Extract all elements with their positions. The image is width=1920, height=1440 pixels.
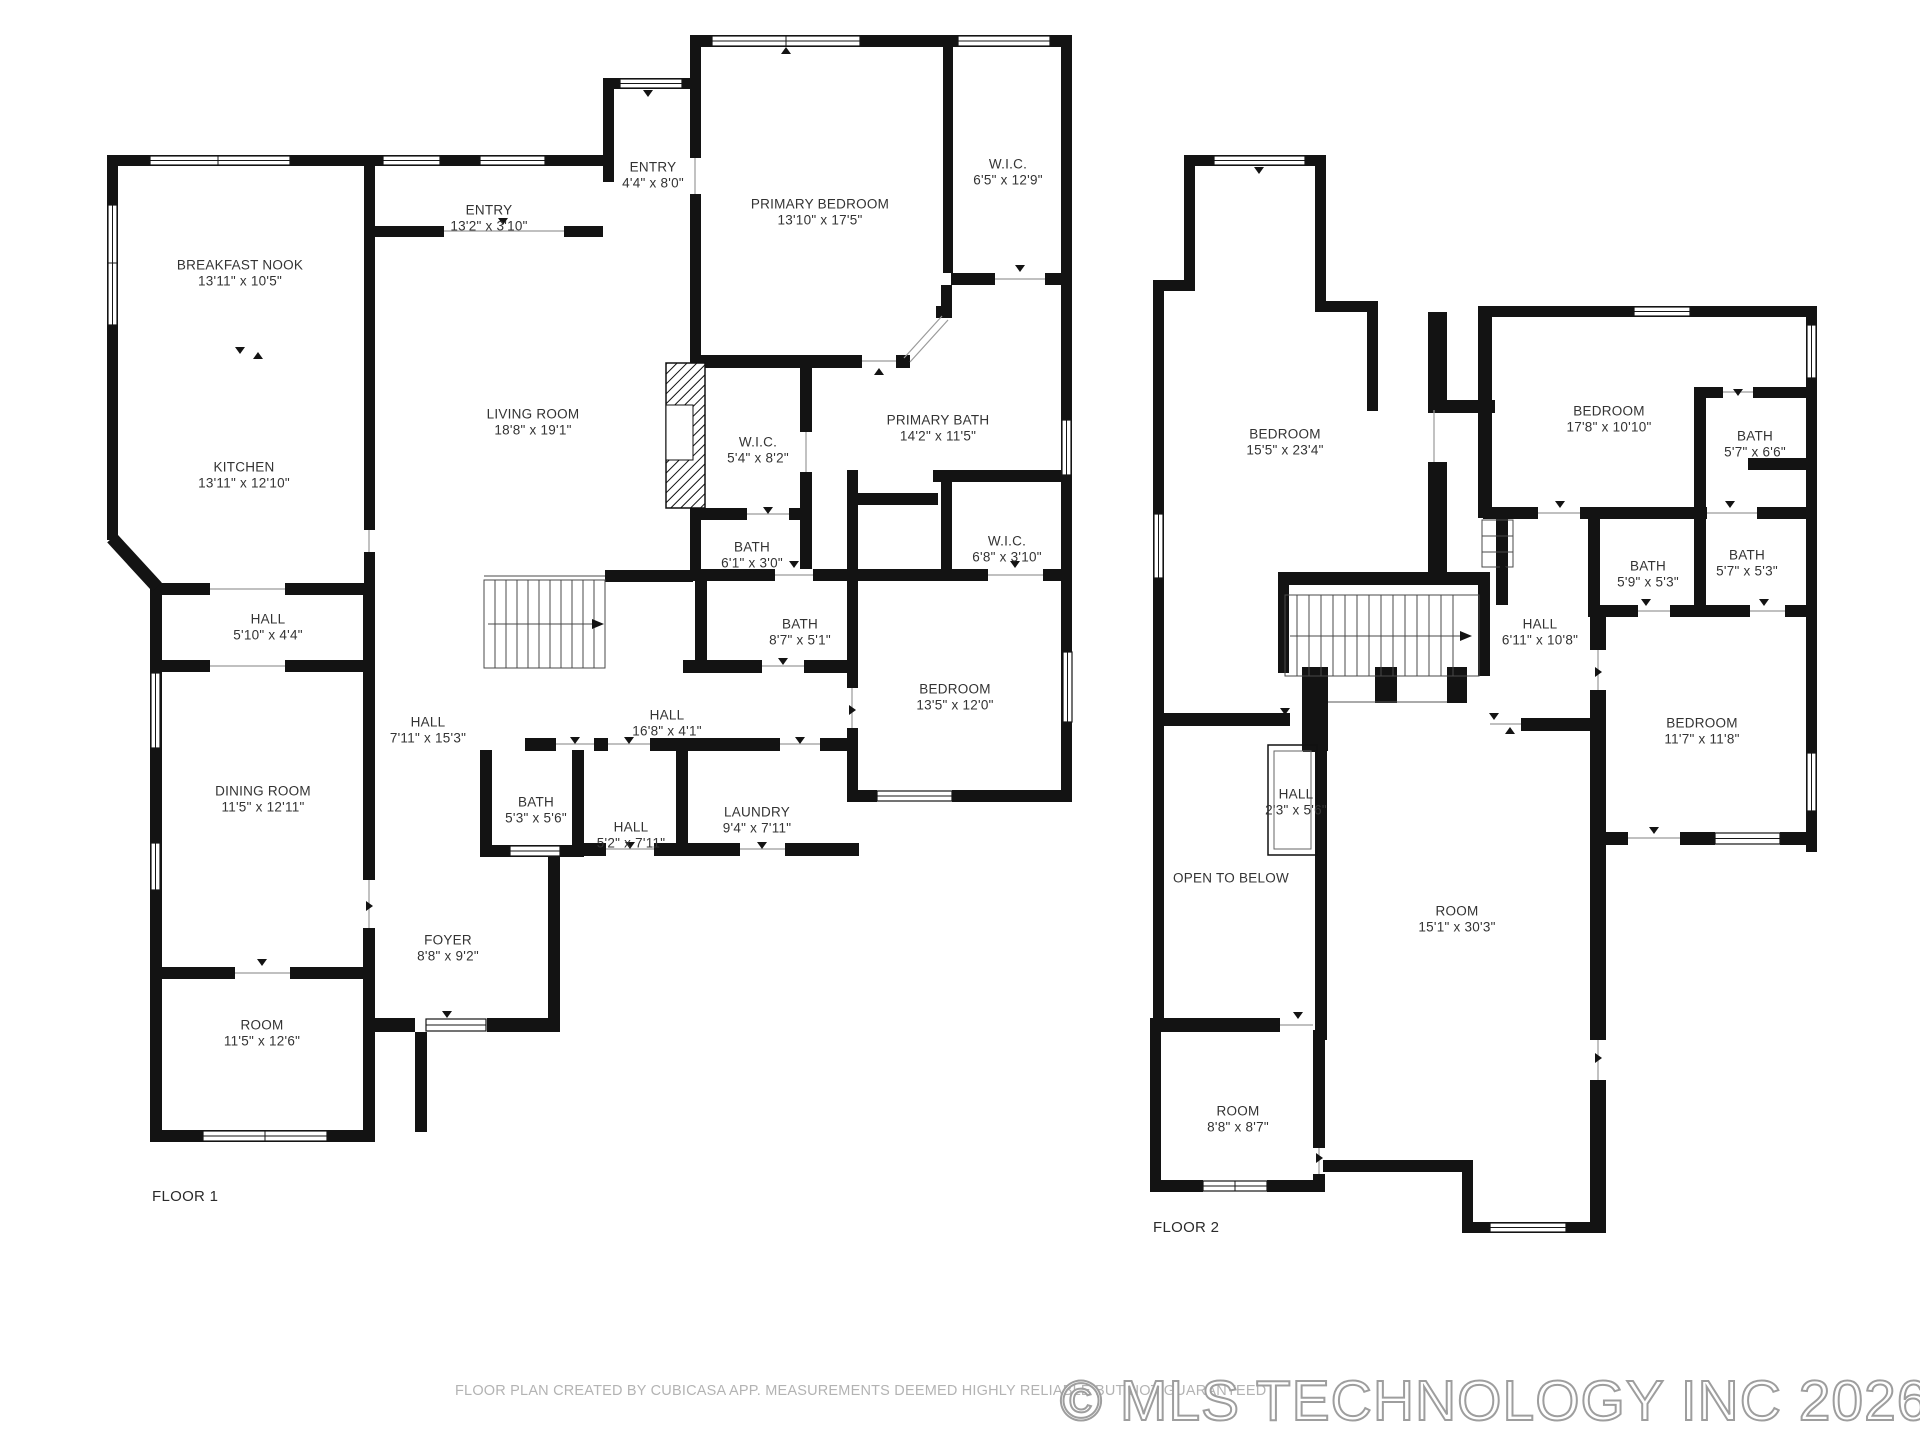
room-label-hall-510: HALL5'10" x 4'4" — [233, 612, 303, 643]
room-label-entry-vestibule: ENTRY4'4" x 8'0" — [622, 160, 684, 191]
floor1-markers — [235, 47, 1025, 1018]
room-label-entry-hall: ENTRY13'2" x 3'10" — [450, 203, 527, 234]
room-label-hall-611: HALL6'11" x 10'8" — [1502, 617, 1578, 648]
room-label-laundry: LAUNDRY9'4" x 7'11" — [723, 805, 792, 836]
room-label-open-to-below: OPEN TO BELOW — [1173, 870, 1289, 886]
room-label-foyer: FOYER8'8" x 9'2" — [417, 933, 479, 964]
room-label-bath-53: BATH5'3" x 5'6" — [505, 795, 567, 826]
room-label-hall-711: HALL7'11" x 15'3" — [390, 715, 466, 746]
room-label-dining-room: DINING ROOM11'5" x 12'11" — [215, 784, 311, 815]
floor2-walls — [1150, 155, 1817, 1233]
stairs-floor2 — [1285, 520, 1513, 676]
room-label-bath-61: BATH6'1" x 3'0" — [721, 540, 783, 571]
room-label-bedroom-135: BEDROOM13'5" x 12'0" — [916, 682, 993, 713]
floor-plan-page: BREAKFAST NOOK13'11" x 10'5" ENTRY13'2" … — [0, 0, 1920, 1440]
room-label-primary-bath: PRIMARY BATH14'2" x 11'5" — [887, 413, 990, 444]
room-label-bedroom-155: BEDROOM15'5" x 23'4" — [1246, 427, 1323, 458]
room-label-bedroom-178: BEDROOM17'8" x 10'10" — [1566, 404, 1651, 435]
room-label-bath-576: BATH5'7" x 6'6" — [1724, 429, 1786, 460]
room-label-primary-bedroom: PRIMARY BEDROOM13'10" x 17'5" — [751, 197, 889, 228]
room-label-bath-57: BATH5'7" x 5'3" — [1716, 548, 1778, 579]
floor2-title: FLOOR 2 — [1153, 1219, 1219, 1236]
room-label-wic-primary: W.I.C.6'5" x 12'9" — [973, 157, 1043, 188]
room-label-hall-168: HALL16'8" x 4'1" — [632, 708, 702, 739]
room-label-hall-52: HALL5'2" x 7'11" — [597, 820, 666, 851]
fireplace — [666, 363, 705, 508]
floor1-door-openings — [210, 158, 1045, 973]
room-label-room-115: ROOM11'5" x 12'6" — [224, 1018, 300, 1049]
floor-plan-drawing — [0, 0, 1920, 1440]
room-label-bedroom-117: BEDROOM11'7" x 11'8" — [1664, 716, 1739, 747]
room-label-wic-68: W.I.C.6'8" x 3'10" — [972, 534, 1042, 565]
room-label-room-151: ROOM15'1" x 30'3" — [1418, 904, 1495, 935]
room-label-living-room: LIVING ROOM18'8" x 19'1" — [487, 407, 580, 438]
room-label-bath-87: BATH8'7" x 5'1" — [769, 617, 831, 648]
room-label-bath-59: BATH5'9" x 5'3" — [1617, 559, 1679, 590]
room-label-room-88: ROOM8'8" x 8'7" — [1207, 1104, 1269, 1135]
room-label-wic-54: W.I.C.5'4" x 8'2" — [727, 435, 789, 466]
copyright-watermark: © MLS TECHNOLOGY INC 2026 — [1060, 1368, 1920, 1434]
room-label-kitchen: KITCHEN13'11" x 12'10" — [198, 460, 290, 491]
stairs-floor1 — [484, 576, 605, 668]
floor1-title: FLOOR 1 — [152, 1188, 218, 1205]
room-label-breakfast-nook: BREAKFAST NOOK13'11" x 10'5" — [177, 258, 303, 289]
room-label-hall-23: HALL2'3" x 5'6" — [1265, 787, 1327, 818]
